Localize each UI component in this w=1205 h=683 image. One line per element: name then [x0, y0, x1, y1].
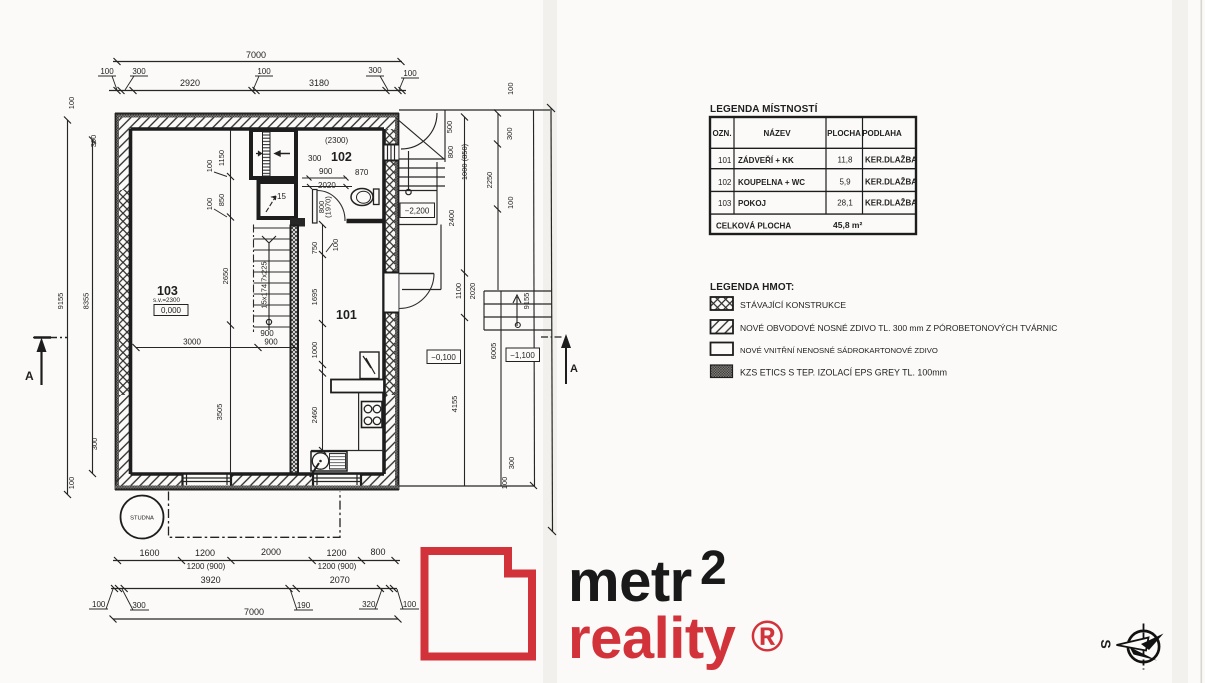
- svg-text:100: 100: [257, 67, 271, 76]
- svg-text:reality: reality: [568, 606, 736, 671]
- svg-text:−2,200: −2,200: [405, 207, 430, 216]
- svg-text:2: 2: [700, 542, 727, 595]
- svg-text:0,000: 0,000: [161, 306, 182, 315]
- svg-text:A: A: [25, 369, 34, 383]
- svg-text:103: 103: [157, 284, 178, 298]
- svg-text:1000: 1000: [310, 342, 319, 359]
- svg-text:11,8: 11,8: [838, 156, 854, 165]
- svg-text:190: 190: [297, 601, 311, 610]
- svg-text:1000 (850): 1000 (850): [460, 143, 469, 180]
- svg-text:103: 103: [718, 199, 732, 208]
- svg-text:7000: 7000: [246, 50, 266, 60]
- svg-text:100: 100: [100, 67, 114, 76]
- svg-text:100: 100: [506, 82, 515, 95]
- svg-text:POKOJ: POKOJ: [738, 199, 766, 208]
- svg-text:−0,100: −0,100: [431, 353, 456, 362]
- svg-text:100: 100: [506, 196, 515, 209]
- svg-text:300: 300: [507, 457, 516, 470]
- svg-text:900: 900: [260, 329, 274, 338]
- svg-text:100: 100: [403, 69, 417, 78]
- svg-text:100: 100: [67, 477, 76, 490]
- svg-text:LEGENDA MÍSTNOSTÍ: LEGENDA MÍSTNOSTÍ: [710, 102, 818, 115]
- svg-text:300: 300: [368, 66, 382, 75]
- svg-text:PLOCHA: PLOCHA: [827, 129, 861, 138]
- svg-text:9155: 9155: [522, 293, 531, 310]
- svg-text:4155: 4155: [450, 396, 459, 413]
- svg-text:2020: 2020: [318, 181, 336, 190]
- svg-text:CELKOVÁ PLOCHA: CELKOVÁ PLOCHA: [716, 222, 791, 231]
- svg-text:2020: 2020: [468, 283, 477, 300]
- svg-text:3505: 3505: [215, 404, 224, 421]
- svg-text:2400: 2400: [447, 210, 456, 227]
- svg-text:3920: 3920: [201, 575, 221, 585]
- svg-text:9155: 9155: [56, 293, 65, 310]
- svg-text:850: 850: [217, 194, 226, 207]
- svg-text:2250: 2250: [485, 172, 494, 189]
- svg-text:102: 102: [718, 178, 732, 187]
- svg-text:8355: 8355: [82, 293, 91, 310]
- svg-text:2070: 2070: [330, 575, 350, 585]
- svg-text:2460: 2460: [310, 407, 319, 424]
- svg-text:102: 102: [331, 150, 352, 164]
- svg-text:LEGENDA HMOT:: LEGENDA HMOT:: [710, 282, 794, 293]
- svg-text:28,1: 28,1: [837, 199, 853, 208]
- svg-text:900: 900: [264, 338, 278, 347]
- svg-text:800: 800: [446, 146, 455, 159]
- svg-text:−1,100: −1,100: [510, 351, 535, 360]
- svg-text:100: 100: [205, 160, 214, 173]
- svg-text:NÁZEV: NÁZEV: [763, 129, 791, 138]
- svg-text:6005: 6005: [489, 343, 498, 360]
- svg-text:KER.DLAŽBA: KER.DLAŽBA: [865, 199, 917, 208]
- svg-text:KER.DLAŽBA: KER.DLAŽBA: [865, 156, 917, 165]
- svg-text:300: 300: [505, 127, 514, 140]
- svg-text:100: 100: [403, 600, 417, 609]
- svg-text:320: 320: [362, 600, 376, 609]
- svg-text:100: 100: [92, 600, 106, 609]
- svg-text:(2300): (2300): [325, 136, 348, 145]
- svg-text:1150: 1150: [217, 150, 226, 166]
- svg-text:PODLAHA: PODLAHA: [862, 129, 902, 138]
- svg-text:3180: 3180: [309, 78, 329, 88]
- svg-text:300: 300: [132, 67, 146, 76]
- svg-text:300: 300: [132, 601, 146, 610]
- svg-text:1100: 1100: [454, 283, 463, 299]
- svg-text:NOVÉ VNITŘNÍ NENOSNÉ SÁDROKART: NOVÉ VNITŘNÍ NENOSNÉ SÁDROKARTONOVÉ ZDIV…: [740, 346, 938, 355]
- svg-text:OZN.: OZN.: [712, 129, 731, 138]
- svg-text:3000: 3000: [183, 338, 201, 347]
- svg-text:metr: metr: [568, 549, 692, 614]
- svg-text:1200: 1200: [326, 548, 346, 558]
- svg-text:101: 101: [336, 308, 357, 322]
- svg-text:300: 300: [90, 438, 99, 451]
- svg-text:15: 15: [277, 192, 286, 201]
- svg-text:101: 101: [718, 156, 732, 165]
- svg-text:ZÁDVEŘÍ + KK: ZÁDVEŘÍ + KK: [738, 156, 794, 165]
- svg-text:800: 800: [370, 547, 385, 557]
- svg-text:KOUPELNA + WC: KOUPELNA + WC: [738, 178, 805, 187]
- svg-text:s.v.=2300: s.v.=2300: [153, 297, 181, 304]
- svg-text:2000: 2000: [261, 547, 281, 557]
- svg-text:100: 100: [331, 239, 340, 252]
- svg-text:1600: 1600: [139, 548, 159, 558]
- svg-text:S: S: [1098, 639, 1114, 648]
- svg-text:KER.DLAŽBA: KER.DLAŽBA: [865, 178, 917, 187]
- svg-text:2650: 2650: [221, 268, 230, 285]
- svg-text:1200: 1200: [195, 548, 215, 558]
- svg-text:900: 900: [319, 167, 333, 176]
- svg-text:300: 300: [89, 135, 98, 148]
- svg-text:300: 300: [308, 154, 322, 163]
- svg-text:750: 750: [310, 242, 319, 255]
- svg-text:15x174,7x225: 15x174,7x225: [260, 261, 269, 308]
- svg-text:(1970): (1970): [324, 196, 333, 218]
- svg-text:7000: 7000: [244, 607, 264, 617]
- svg-text:870: 870: [355, 168, 369, 177]
- svg-text:STUDNA: STUDNA: [130, 516, 154, 522]
- svg-text:®: ®: [751, 612, 783, 661]
- svg-text:5,9: 5,9: [839, 178, 851, 187]
- svg-text:2920: 2920: [180, 78, 200, 88]
- svg-text:100: 100: [500, 477, 509, 490]
- svg-text:1695: 1695: [310, 289, 319, 306]
- svg-text:A: A: [570, 363, 578, 375]
- svg-text:NOVÉ OBVODOVÉ NOSNÉ ZDIVO TL.: NOVÉ OBVODOVÉ NOSNÉ ZDIVO TL. 300 mm Z P…: [740, 323, 1057, 333]
- svg-text:1200 (900): 1200 (900): [187, 562, 226, 571]
- svg-text:1200 (900): 1200 (900): [318, 562, 357, 571]
- svg-text:45,8 m²: 45,8 m²: [833, 220, 862, 230]
- svg-text:100: 100: [67, 97, 76, 110]
- svg-text:500: 500: [445, 121, 454, 134]
- svg-text:KZS ETICS S TEP. IZOLACÍ EPS G: KZS ETICS S TEP. IZOLACÍ EPS GREY TL. 10…: [740, 368, 947, 378]
- svg-text:STÁVAJÍCÍ KONSTRUKCE: STÁVAJÍCÍ KONSTRUKCE: [740, 300, 846, 310]
- svg-text:100: 100: [205, 198, 214, 211]
